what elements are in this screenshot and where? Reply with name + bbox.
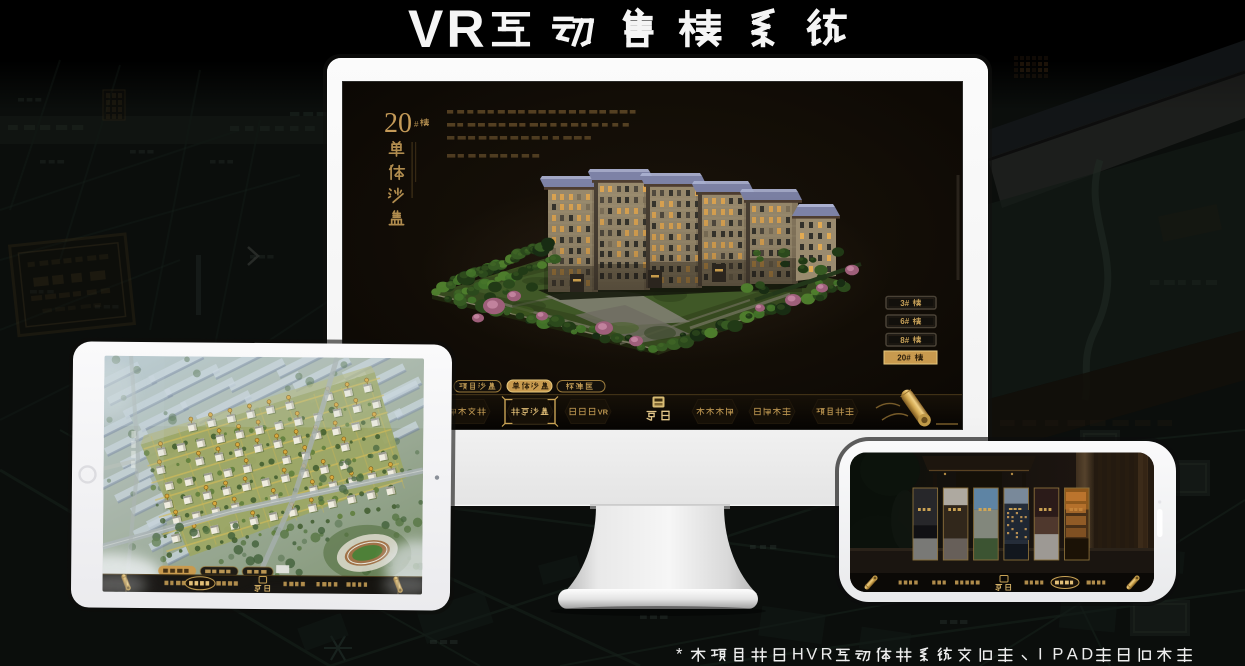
svg-text:P: P bbox=[1052, 646, 1063, 664]
svg-text:R: R bbox=[821, 646, 833, 664]
svg-text:#: # bbox=[414, 120, 419, 129]
svg-text:VR: VR bbox=[598, 408, 609, 417]
svg-text:D: D bbox=[1081, 646, 1093, 664]
svg-text:20#: 20# bbox=[897, 354, 911, 363]
svg-text:I: I bbox=[1038, 646, 1043, 664]
svg-text:VR: VR bbox=[408, 0, 488, 59]
svg-text:8#: 8# bbox=[900, 336, 909, 345]
svg-text:H: H bbox=[792, 646, 804, 664]
svg-text:V: V bbox=[806, 646, 817, 664]
svg-text:20: 20 bbox=[384, 108, 412, 139]
svg-text:6#: 6# bbox=[900, 317, 909, 326]
svg-text:*: * bbox=[676, 646, 683, 664]
svg-text:3#: 3# bbox=[900, 299, 909, 308]
svg-text:A: A bbox=[1067, 646, 1078, 664]
